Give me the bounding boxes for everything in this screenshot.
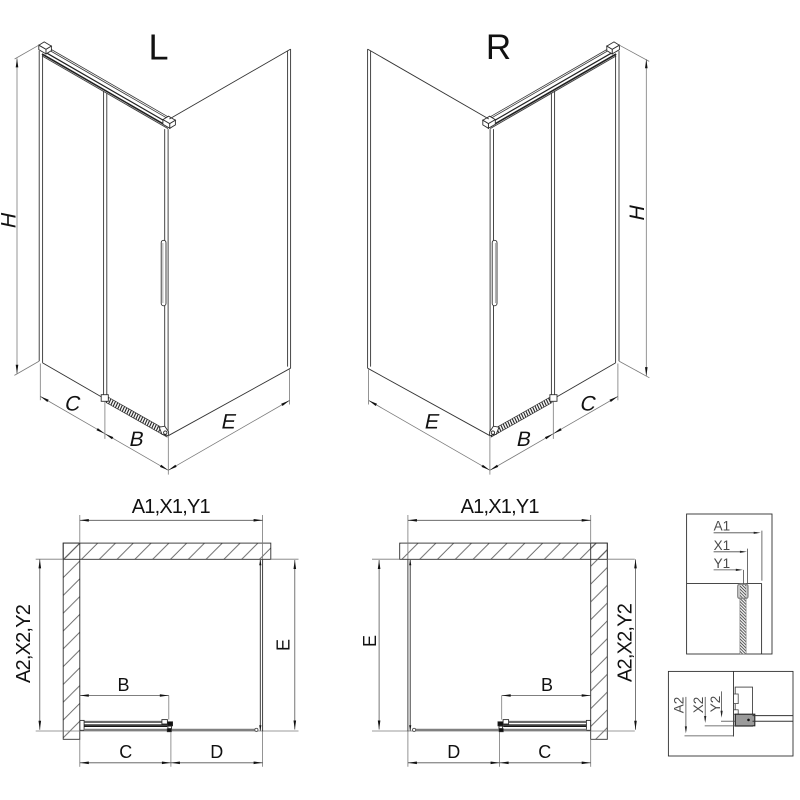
svg-text:C: C	[119, 742, 132, 762]
svg-text:A2: A2	[672, 697, 687, 714]
svg-text:B: B	[541, 675, 553, 695]
svg-text:A1,X1,Y1: A1,X1,Y1	[461, 496, 540, 518]
svg-text:A2,X2,Y2: A2,X2,Y2	[614, 603, 636, 682]
svg-text:Y2: Y2	[708, 696, 723, 713]
svg-text:D: D	[210, 742, 223, 762]
svg-text:E: E	[273, 639, 293, 651]
svg-text:C: C	[538, 742, 551, 762]
svg-text:B: B	[117, 675, 129, 695]
svg-text:A1: A1	[714, 518, 731, 533]
svg-text:X1: X1	[714, 538, 731, 553]
svg-text:L: L	[148, 27, 168, 68]
svg-text:Y1: Y1	[714, 556, 731, 571]
svg-text:E: E	[360, 635, 380, 647]
svg-text:A2,X2,Y2: A2,X2,Y2	[13, 604, 35, 683]
svg-text:X2: X2	[691, 697, 706, 714]
svg-text:A1,X1,Y1: A1,X1,Y1	[132, 496, 211, 518]
svg-text:R: R	[486, 28, 511, 67]
svg-text:D: D	[447, 742, 460, 762]
